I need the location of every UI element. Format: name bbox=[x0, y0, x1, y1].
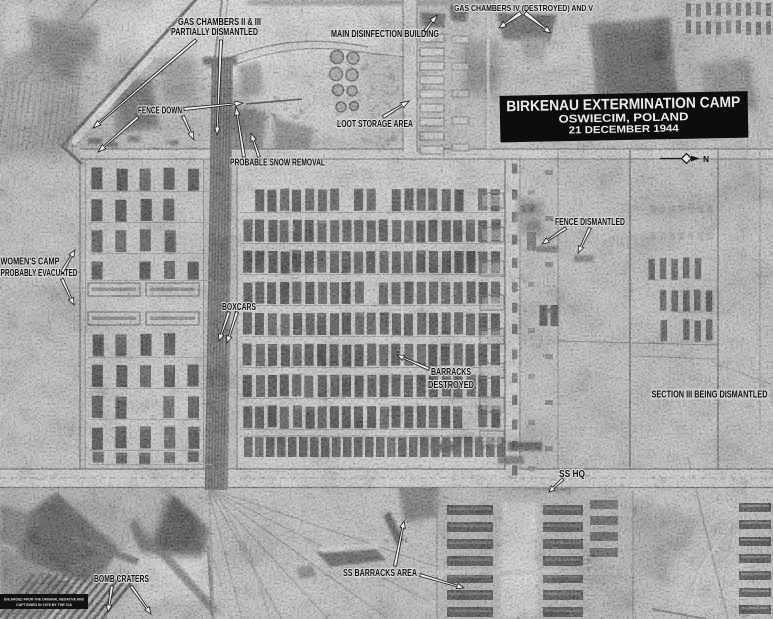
svg-text:SS BARRACKS AREA: SS BARRACKS AREA bbox=[343, 567, 417, 579]
svg-text:GAS CHAMBERS IV (DESTROYED) AN: GAS CHAMBERS IV (DESTROYED) AND V bbox=[454, 3, 593, 13]
svg-text:FENCE DISMANTLED: FENCE DISMANTLED bbox=[555, 216, 625, 228]
svg-text:PROBABLY EVACUATED: PROBABLY EVACUATED bbox=[1, 267, 78, 279]
svg-text:BOXCARS: BOXCARS bbox=[222, 301, 256, 313]
svg-text:BARRACKS: BARRACKS bbox=[431, 366, 471, 378]
svg-text:CAPTIONED IN 1978 BY THE CIA: CAPTIONED IN 1978 BY THE CIA bbox=[16, 603, 73, 607]
svg-text:N: N bbox=[703, 154, 709, 164]
svg-text:FENCE DOWN: FENCE DOWN bbox=[138, 105, 182, 117]
svg-text:BOMB CRATERS: BOMB CRATERS bbox=[94, 573, 149, 585]
svg-text:DESTROYED: DESTROYED bbox=[428, 379, 474, 391]
svg-text:21 DECEMBER 1944: 21 DECEMBER 1944 bbox=[569, 123, 680, 136]
svg-text:SECTION III BEING DISMANTLED: SECTION III BEING DISMANTLED bbox=[652, 390, 768, 401]
svg-text:ENLARGED FROM THE ORIGINAL NEG: ENLARGED FROM THE ORIGINAL NEGATIVE AND bbox=[4, 598, 85, 602]
svg-text:PARTIALLY DISMANTLED: PARTIALLY DISMANTLED bbox=[171, 26, 258, 38]
svg-text:MAIN DISINFECTION BUILDING: MAIN DISINFECTION BUILDING bbox=[331, 28, 439, 40]
svg-text:WOMEN'S CAMP: WOMEN'S CAMP bbox=[1, 256, 60, 268]
svg-text:PROBABLE SNOW REMOVAL: PROBABLE SNOW REMOVAL bbox=[230, 157, 325, 169]
svg-text:SS HQ: SS HQ bbox=[559, 468, 585, 480]
svg-text:LOOT STORAGE AREA: LOOT STORAGE AREA bbox=[337, 118, 413, 130]
